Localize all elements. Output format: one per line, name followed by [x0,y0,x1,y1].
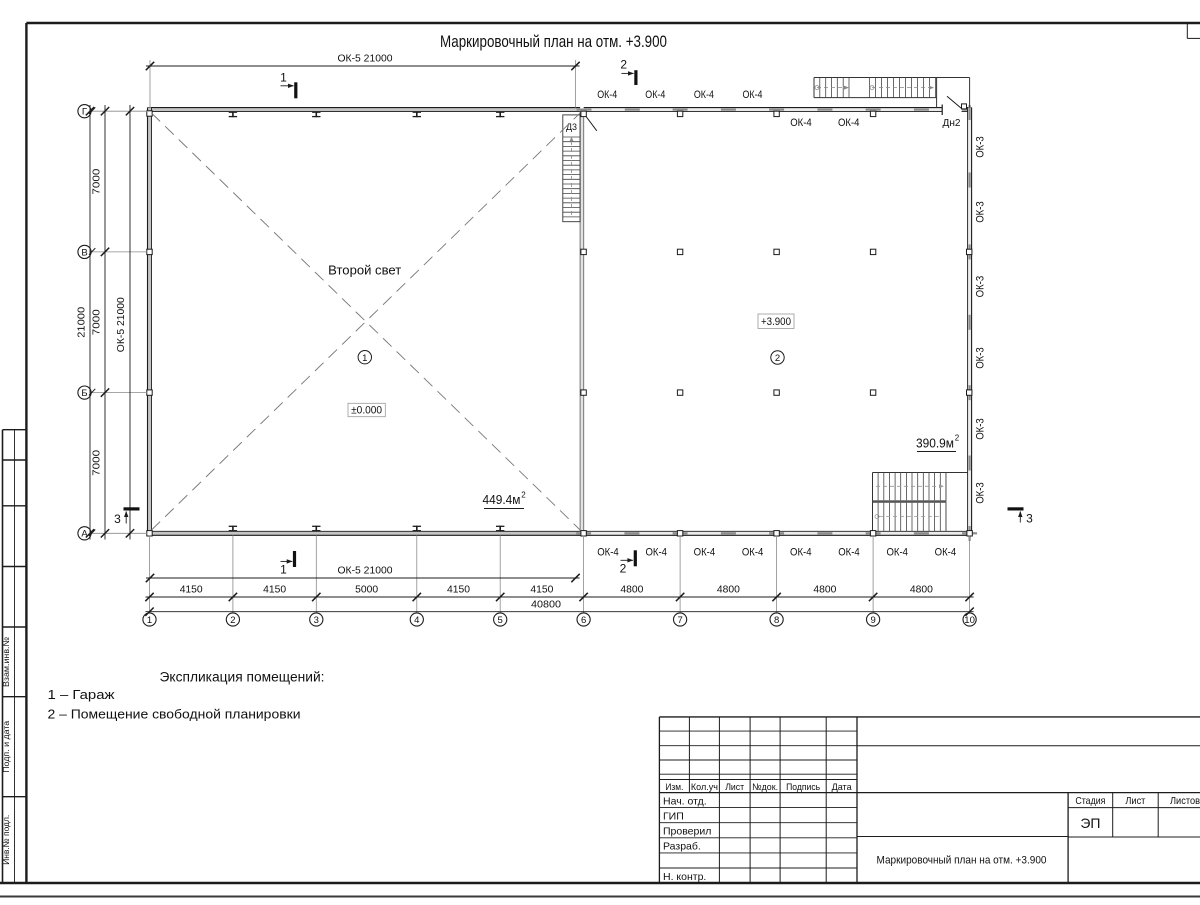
svg-text:7000: 7000 [91,450,103,476]
svg-text:В: В [81,247,87,258]
svg-text:449.4м: 449.4м [483,492,521,507]
svg-text:3: 3 [314,615,319,626]
svg-text:Стадия: Стадия [1075,795,1105,807]
svg-text:1: 1 [147,615,152,626]
svg-text:4800: 4800 [910,584,933,596]
svg-text:Г: Г [82,107,87,118]
svg-text:±0.000: ±0.000 [351,405,382,417]
svg-text:2: 2 [775,353,780,364]
svg-text:21000: 21000 [75,307,87,338]
svg-text:ОК-3: ОК-3 [975,136,987,158]
svg-text:ЭП: ЭП [1080,815,1100,831]
svg-text:1 – Гараж: 1 – Гараж [48,688,116,702]
svg-text:№док.: №док. [752,782,778,793]
svg-text:ГИП: ГИП [663,810,684,822]
svg-text:ОК-4: ОК-4 [597,89,617,101]
svg-text:ОК-4: ОК-4 [790,547,812,559]
svg-text:2: 2 [955,434,960,443]
svg-text:Лист: Лист [1125,795,1145,807]
svg-text:ОК-3: ОК-3 [975,201,987,223]
svg-text:1: 1 [362,353,367,364]
svg-text:Маркировочный план на отм. +3.: Маркировочный план на отм. +3.900 [877,855,1047,867]
svg-text:ОК-4: ОК-4 [645,547,667,559]
svg-text:Подп. и дата: Подп. и дата [1,721,11,773]
svg-text:ОК-3: ОК-3 [975,482,987,504]
svg-text:ОК-3: ОК-3 [975,418,987,440]
svg-text:1: 1 [280,563,287,577]
svg-text:10: 10 [964,615,975,626]
svg-text:ОК-4: ОК-4 [742,547,764,559]
svg-text:40800: 40800 [531,599,561,611]
svg-text:1: 1 [280,71,287,85]
svg-text:3: 3 [114,512,121,526]
svg-text:2: 2 [230,615,235,626]
svg-text:4150: 4150 [447,584,470,596]
svg-text:ОК-4: ОК-4 [838,117,860,129]
svg-text:ОК-5 21000: ОК-5 21000 [338,565,393,577]
svg-text:Взам.инв.№: Взам.инв.№ [1,637,11,687]
svg-text:Кол.уч: Кол.уч [691,782,718,793]
svg-text:390.9м: 390.9м [916,436,954,451]
svg-text:Нач. отд.: Нач. отд. [663,795,707,807]
svg-text:ОК-5 21000: ОК-5 21000 [338,53,393,65]
svg-text:2: 2 [620,58,627,72]
svg-text:Дата: Дата [832,782,853,793]
svg-text:2: 2 [620,562,627,576]
svg-text:Н. контр.: Н. контр. [663,871,706,883]
svg-text:А: А [81,529,88,540]
svg-text:9: 9 [870,615,875,626]
svg-text:4800: 4800 [620,584,643,596]
svg-text:Листов: Листов [1170,795,1200,807]
svg-text:ОК-4: ОК-4 [886,547,908,559]
svg-text:ОК-4: ОК-4 [743,89,763,101]
svg-text:3: 3 [1026,512,1033,526]
svg-text:Разраб.: Разраб. [663,841,701,853]
svg-text:Лист: Лист [725,782,745,793]
svg-text:Экспликация помещений:: Экспликация помещений: [160,670,325,685]
svg-text:Б: Б [81,388,87,399]
svg-text:+3.900: +3.900 [761,316,791,328]
svg-text:ОК-3: ОК-3 [975,347,987,369]
svg-text:4150: 4150 [263,584,286,596]
svg-text:ОК-4: ОК-4 [597,547,619,559]
svg-text:Дн2: Дн2 [943,117,961,129]
svg-text:4150: 4150 [180,584,203,596]
svg-text:2 – Помещение свободной планир: 2 – Помещение свободной планировки [48,708,301,722]
svg-text:7000: 7000 [91,309,103,335]
svg-text:ОК-4: ОК-4 [694,547,716,559]
svg-text:ОК-5 21000: ОК-5 21000 [115,297,127,352]
svg-text:4800: 4800 [717,584,740,596]
svg-text:ОК-4: ОК-4 [935,547,957,559]
svg-text:8: 8 [774,615,779,626]
svg-text:Проверил: Проверил [663,826,711,838]
svg-text:ОК-4: ОК-4 [838,547,860,559]
svg-text:6: 6 [581,615,586,626]
svg-text:ОК-4: ОК-4 [645,89,665,101]
svg-text:7: 7 [677,615,682,626]
svg-text:5000: 5000 [355,584,378,596]
svg-text:Второй свет: Второй свет [328,263,401,278]
svg-text:7000: 7000 [91,168,103,194]
svg-text:Изм.: Изм. [665,782,683,793]
svg-text:ОК-4: ОК-4 [694,89,714,101]
svg-text:4150: 4150 [530,584,553,596]
svg-text:2: 2 [521,491,526,500]
svg-text:ОК-4: ОК-4 [790,117,812,129]
svg-text:4: 4 [414,615,419,626]
svg-text:5: 5 [498,615,503,626]
svg-text:Маркировочный план на отм. +3.: Маркировочный план на отм. +3.900 [440,33,667,51]
svg-text:Подпись: Подпись [786,782,820,793]
svg-text:Д3: Д3 [566,122,577,133]
svg-text:Инв.№ подл.: Инв.№ подл. [1,815,11,865]
svg-text:ОК-3: ОК-3 [975,276,987,298]
svg-text:4800: 4800 [813,584,836,596]
